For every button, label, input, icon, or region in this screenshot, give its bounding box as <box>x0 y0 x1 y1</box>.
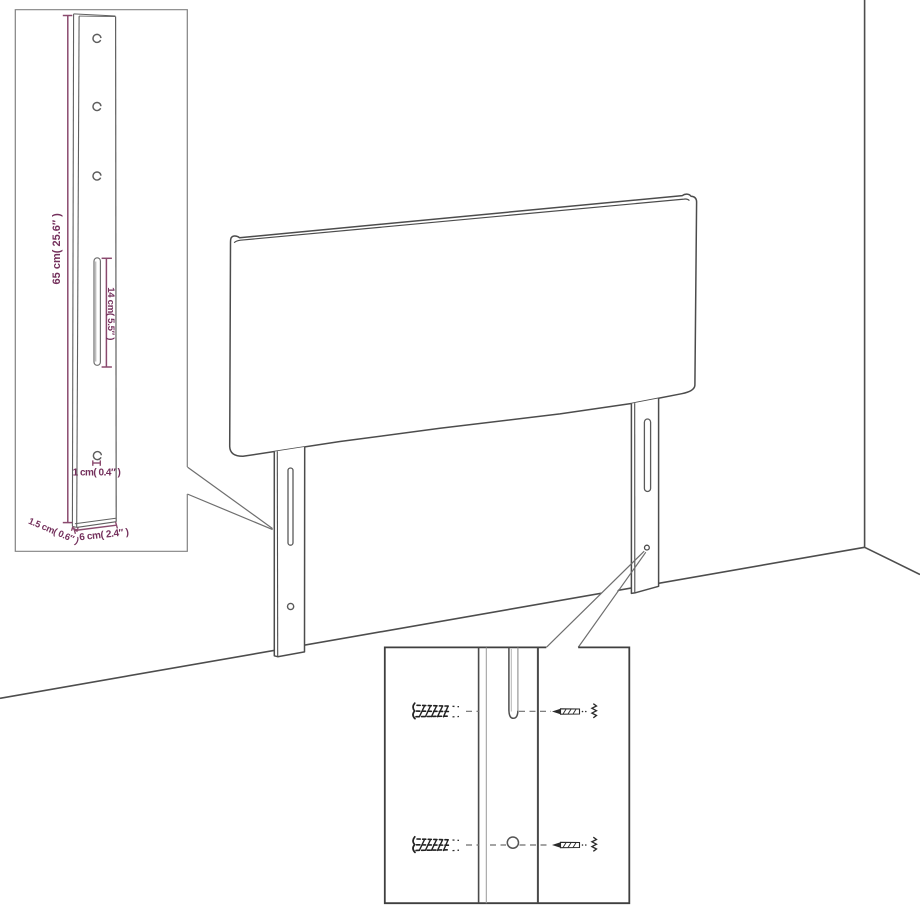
svg-text:14 cm( 5.5″ ): 14 cm( 5.5″ ) <box>105 287 116 340</box>
svg-text:1 cm( 0.4″ ): 1 cm( 0.4″ ) <box>73 467 121 478</box>
svg-text:65 cm( 25.6″ ): 65 cm( 25.6″ ) <box>51 213 63 285</box>
